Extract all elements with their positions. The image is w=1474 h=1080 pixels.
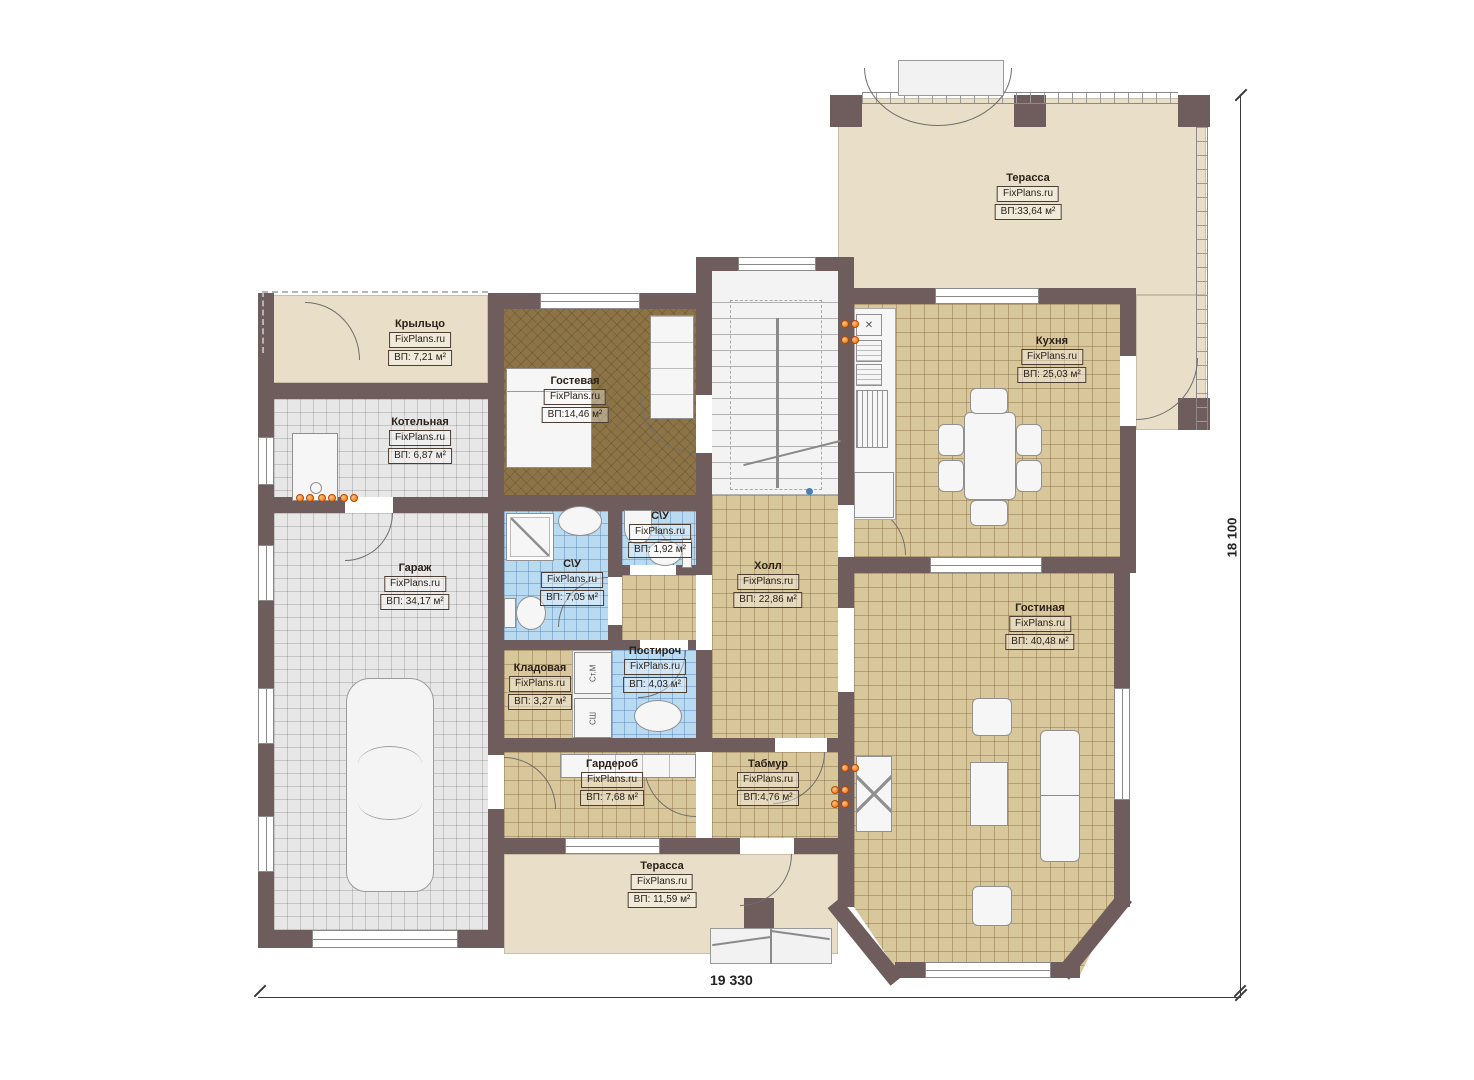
floor-hall-corridor (622, 575, 696, 650)
watermark: FixPlans.ru (509, 676, 571, 692)
chair (1016, 424, 1042, 456)
kitchen-cabinet (854, 472, 894, 518)
porch-canopy-edge (262, 291, 488, 293)
door-opening (740, 838, 794, 854)
wall-segment (488, 495, 712, 511)
watermark: FixPlans.ru (541, 572, 603, 588)
porch-canopy-edge (262, 291, 264, 353)
sofa-divider (1041, 795, 1079, 796)
room-area: ВП: 7,68 м² (580, 790, 644, 806)
armchair (972, 698, 1012, 736)
fireplace (856, 756, 892, 832)
room-area: ВП:4,76 м² (737, 790, 798, 806)
room-name: С\У (651, 510, 669, 522)
watermark: FixPlans.ru (389, 332, 451, 348)
watermark: FixPlans.ru (629, 524, 691, 540)
watermark: FixPlans.ru (624, 659, 686, 675)
toilet-tank (504, 598, 516, 628)
window (935, 288, 1039, 304)
entry-steps (898, 60, 1004, 96)
watermark: FixPlans.ru (631, 874, 693, 890)
cooktop-module (856, 340, 882, 362)
floor-porch (262, 295, 488, 383)
floor-plan: ✕ Ст.М СШ Терасс (0, 0, 1474, 1080)
dimension-label-bottom: 19 330 (710, 972, 753, 988)
watermark: FixPlans.ru (384, 576, 446, 592)
window (258, 816, 274, 872)
garage-door (312, 930, 458, 948)
window (258, 437, 274, 485)
radiator (318, 494, 336, 502)
dimension-tick (254, 985, 267, 998)
room-label-guest: Гостевая FixPlans.ru ВП:14,46 м² (542, 375, 609, 423)
room-label-garage: Гараж FixPlans.ru ВП: 34,17 м² (380, 562, 449, 610)
room-label-kitchen: Кухня FixPlans.ru ВП: 25,03 м² (1017, 335, 1086, 383)
wall-segment (1120, 288, 1136, 573)
room-label-porch: Крыльцо FixPlans.ru ВП: 7,21 м² (388, 318, 452, 366)
wall-segment (488, 738, 712, 752)
dining-table (964, 412, 1016, 500)
room-label-laundry: Постироч FixPlans.ru ВП: 4,03 м² (623, 645, 687, 693)
door-opening (488, 755, 504, 809)
room-label-boiler: Котельная FixPlans.ru ВП: 6,87 м² (388, 416, 452, 464)
drying-cabinet: СШ (574, 698, 612, 738)
room-area: ВП: 34,17 м² (380, 594, 449, 610)
watermark: FixPlans.ru (389, 430, 451, 446)
terrace-post (1178, 95, 1210, 127)
armchair (972, 886, 1012, 926)
shower (506, 513, 554, 561)
radiator (841, 764, 859, 772)
radiator (340, 494, 358, 502)
room-area: ВП: 6,87 м² (388, 448, 452, 464)
room-name: Гостевая (550, 375, 599, 387)
room-name: Постироч (629, 645, 681, 657)
dimension-label-right: 18 100 (1224, 518, 1239, 558)
door-opening (838, 505, 854, 557)
room-area: ВП:33,64 м² (995, 204, 1062, 220)
wall-segment (696, 511, 712, 575)
room-name: Табмур (748, 758, 788, 770)
window (540, 293, 640, 309)
room-name: Кухня (1036, 335, 1068, 347)
chair (970, 388, 1008, 414)
chair (938, 460, 964, 492)
room-name: Крыльцо (395, 318, 445, 330)
room-label-tambour: Табмур FixPlans.ru ВП:4,76 м² (737, 758, 799, 806)
room-label-bath-small: С\У FixPlans.ru ВП: 1,92 м² (628, 510, 692, 558)
sink (558, 506, 602, 536)
radiator (831, 800, 849, 808)
wall-segment (258, 383, 504, 399)
radiator (831, 786, 849, 794)
room-area: ВП: 7,05 м² (540, 590, 604, 606)
room-area: ВП: 7,21 м² (388, 350, 452, 366)
coffee-table (970, 762, 1008, 826)
radiator (296, 494, 314, 502)
wall-segment (696, 257, 712, 500)
room-name: Гостиная (1015, 602, 1065, 614)
terrace-post (830, 95, 862, 127)
room-label-hall: Холл FixPlans.ru ВП: 22,86 м² (733, 560, 802, 608)
sink (634, 700, 682, 732)
room-area: ВП: 40,48 м² (1005, 634, 1074, 650)
window (258, 688, 274, 744)
door-opening (1120, 356, 1136, 426)
window (738, 257, 816, 271)
room-label-storage: Кладовая FixPlans.ru ВП: 3,27 м² (508, 662, 572, 710)
door-opening (696, 395, 712, 453)
radiator (841, 320, 859, 328)
watermark: FixPlans.ru (1021, 349, 1083, 365)
room-name: Терасса (1006, 172, 1050, 184)
washing-machine: Ст.М (574, 652, 612, 694)
steps-center-line (770, 928, 772, 964)
dimension-line-right (1240, 96, 1241, 998)
room-name: Гараж (399, 562, 432, 574)
watermark: FixPlans.ru (1009, 616, 1071, 632)
room-name: Холл (754, 560, 782, 572)
sofa (1040, 730, 1080, 862)
stair-rail (776, 318, 779, 488)
room-area: ВП: 4,03 м² (623, 677, 687, 693)
window (1114, 688, 1130, 800)
passage-opening (838, 608, 854, 692)
room-label-terrace-top: Терасса FixPlans.ru ВП:33,64 м² (995, 172, 1062, 220)
watermark: FixPlans.ru (581, 772, 643, 788)
stair-marker (806, 488, 813, 495)
watermark: FixPlans.ru (997, 186, 1059, 202)
chair (970, 500, 1008, 526)
room-area: ВП: 11,59 м² (628, 892, 697, 908)
window (565, 838, 660, 854)
car (346, 678, 434, 892)
window (925, 962, 1051, 978)
fridge (856, 390, 888, 448)
room-name: Кладовая (514, 662, 567, 674)
chair (1016, 460, 1042, 492)
room-label-bath-big: С\У FixPlans.ru ВП: 7,05 м² (540, 558, 604, 606)
room-label-terrace-bottom: Терасса FixPlans.ru ВП: 11,59 м² (628, 860, 697, 908)
room-name: Терасса (640, 860, 684, 872)
room-area: ВП: 3,27 м² (508, 694, 572, 710)
room-name: С\У (563, 558, 581, 570)
door-opening (630, 565, 676, 575)
dimension-tick (1235, 89, 1248, 102)
radiator (841, 336, 859, 344)
guest-wardrobe (650, 315, 694, 419)
sink-module (856, 364, 882, 386)
interior-window (930, 557, 1042, 573)
watermark: FixPlans.ru (737, 574, 799, 590)
door-opening (696, 765, 712, 819)
floor-hall (712, 495, 838, 752)
boiler-valve (310, 482, 322, 494)
room-name: Котельная (391, 416, 449, 428)
room-label-living: Гостиная FixPlans.ru ВП: 40,48 м² (1005, 602, 1074, 650)
room-area: ВП: 1,92 м² (628, 542, 692, 558)
window (258, 545, 274, 601)
watermark: FixPlans.ru (737, 772, 799, 788)
room-label-wardrobe: Гардероб FixPlans.ru ВП: 7,68 м² (580, 758, 644, 806)
room-area: ВП:14,46 м² (542, 407, 609, 423)
wall-segment (696, 650, 712, 752)
room-area: ВП: 25,03 м² (1017, 367, 1086, 383)
room-area: ВП: 22,86 м² (733, 592, 802, 608)
railing (1196, 127, 1208, 430)
vent-icon: ✕ (856, 314, 882, 336)
door-opening (775, 738, 827, 752)
door-opening (608, 577, 622, 625)
chair (938, 424, 964, 456)
room-name: Гардероб (586, 758, 638, 770)
dimension-line-bottom (258, 997, 1240, 998)
watermark: FixPlans.ru (544, 389, 606, 405)
